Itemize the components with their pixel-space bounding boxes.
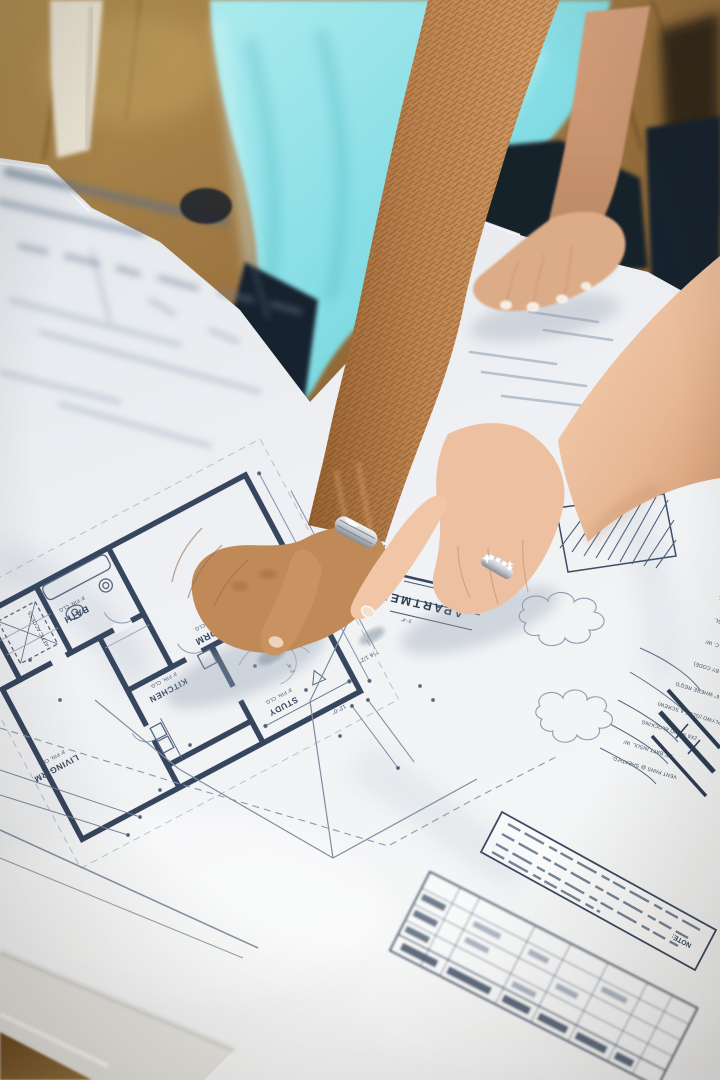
photo-couple-blueprint: BATH 8' FIN. CLG. BEDRM 8' FIN. CLG. KIT…	[0, 0, 720, 1080]
vignette	[0, 0, 720, 1080]
